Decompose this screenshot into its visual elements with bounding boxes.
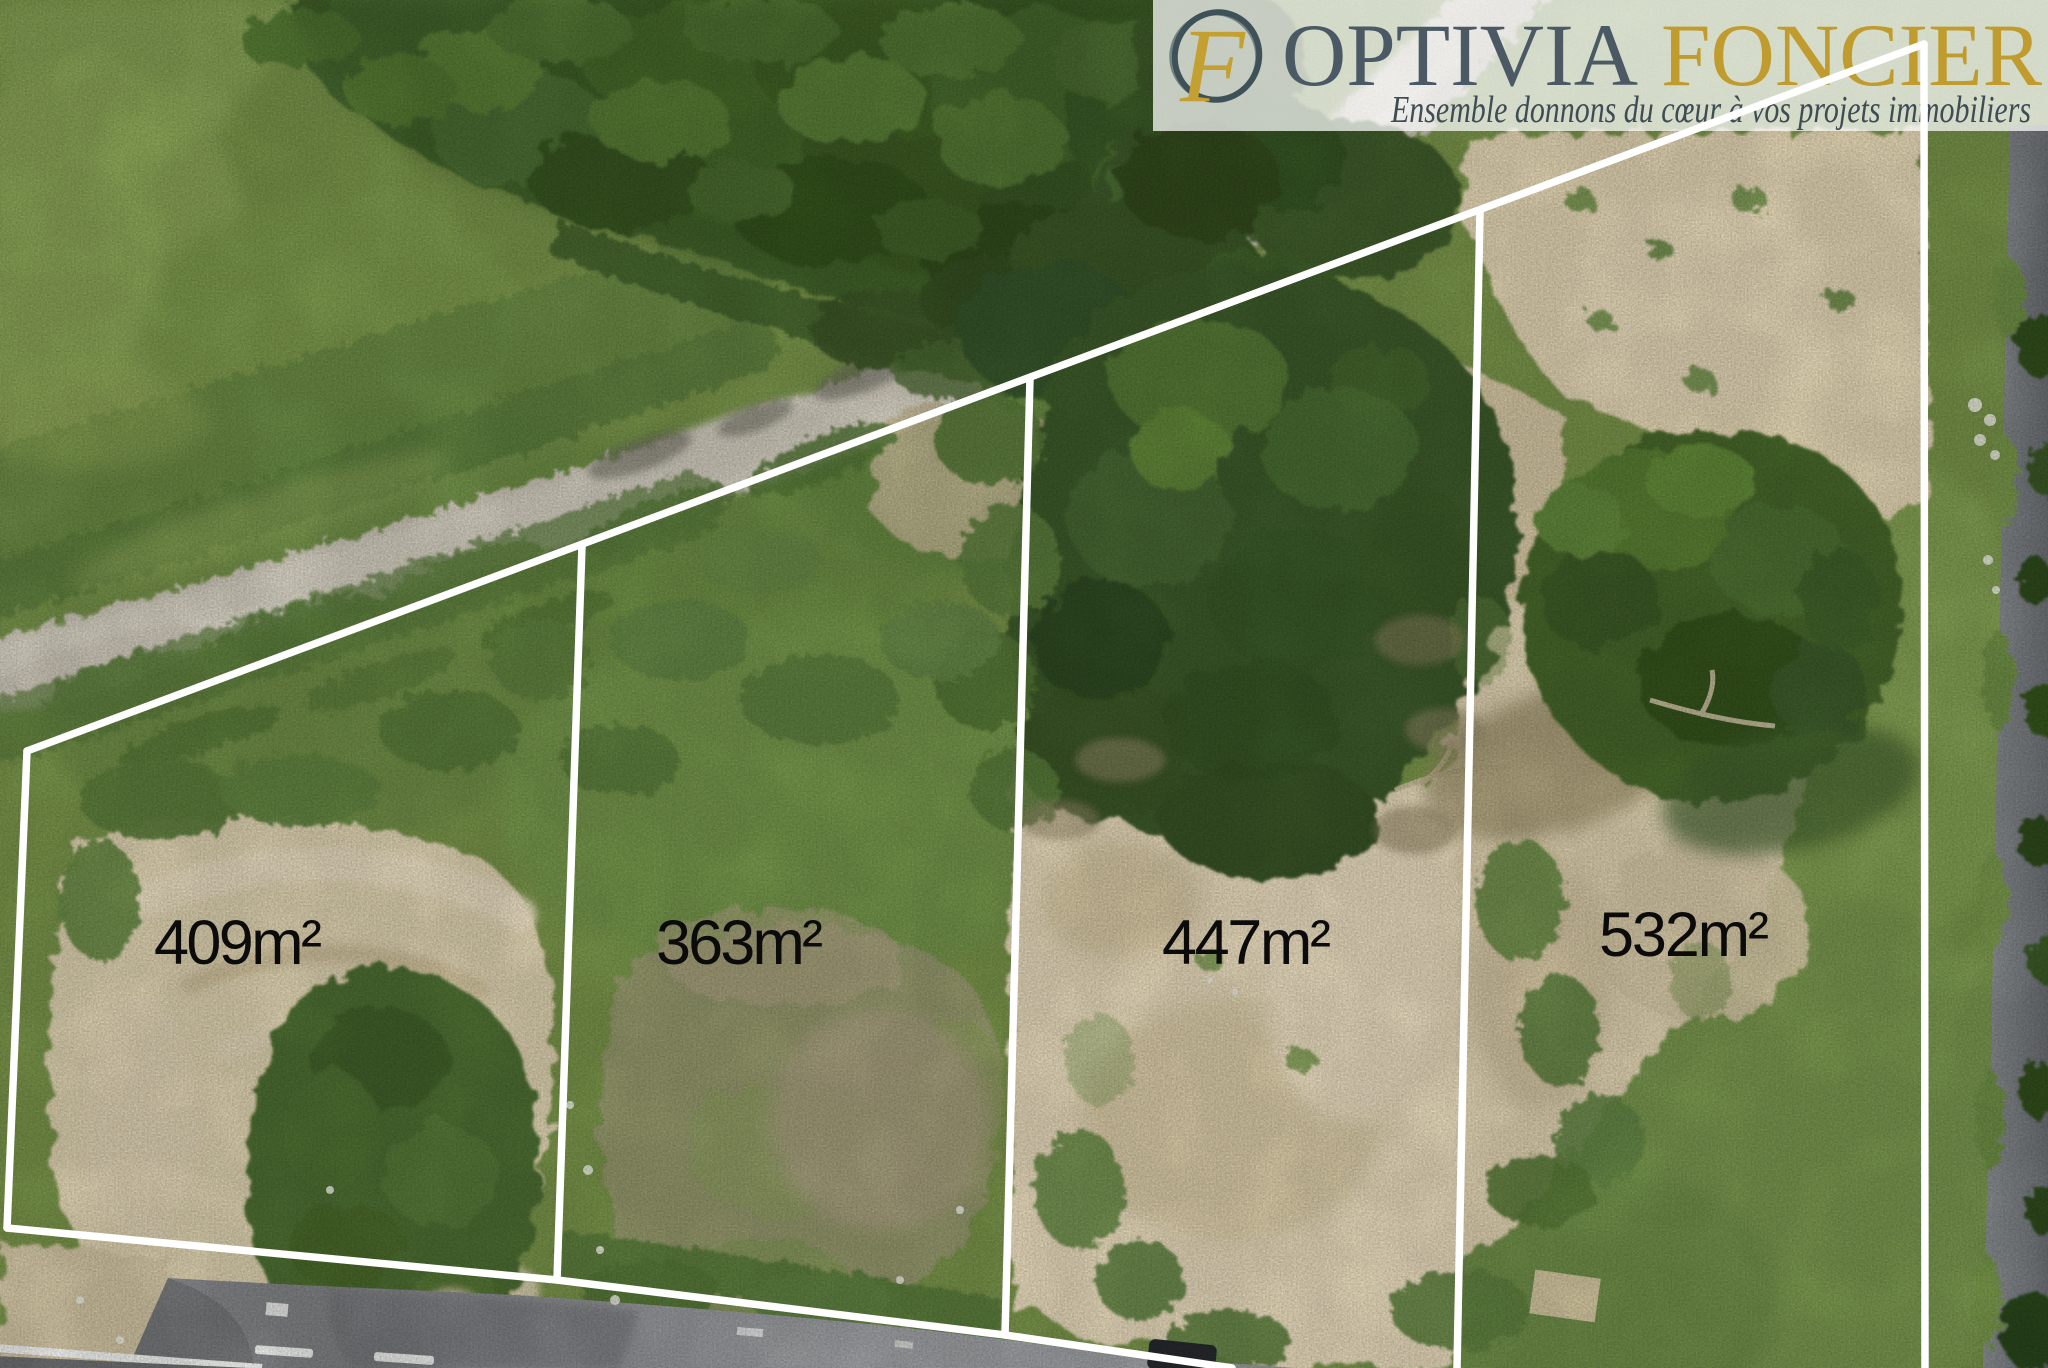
svg-text:447m²: 447m² <box>1162 908 1331 978</box>
svg-text:F: F <box>1179 7 1246 124</box>
svg-text:363m²: 363m² <box>656 908 823 978</box>
svg-text:409m²: 409m² <box>154 908 322 978</box>
svg-text:532m²: 532m² <box>1599 900 1769 970</box>
